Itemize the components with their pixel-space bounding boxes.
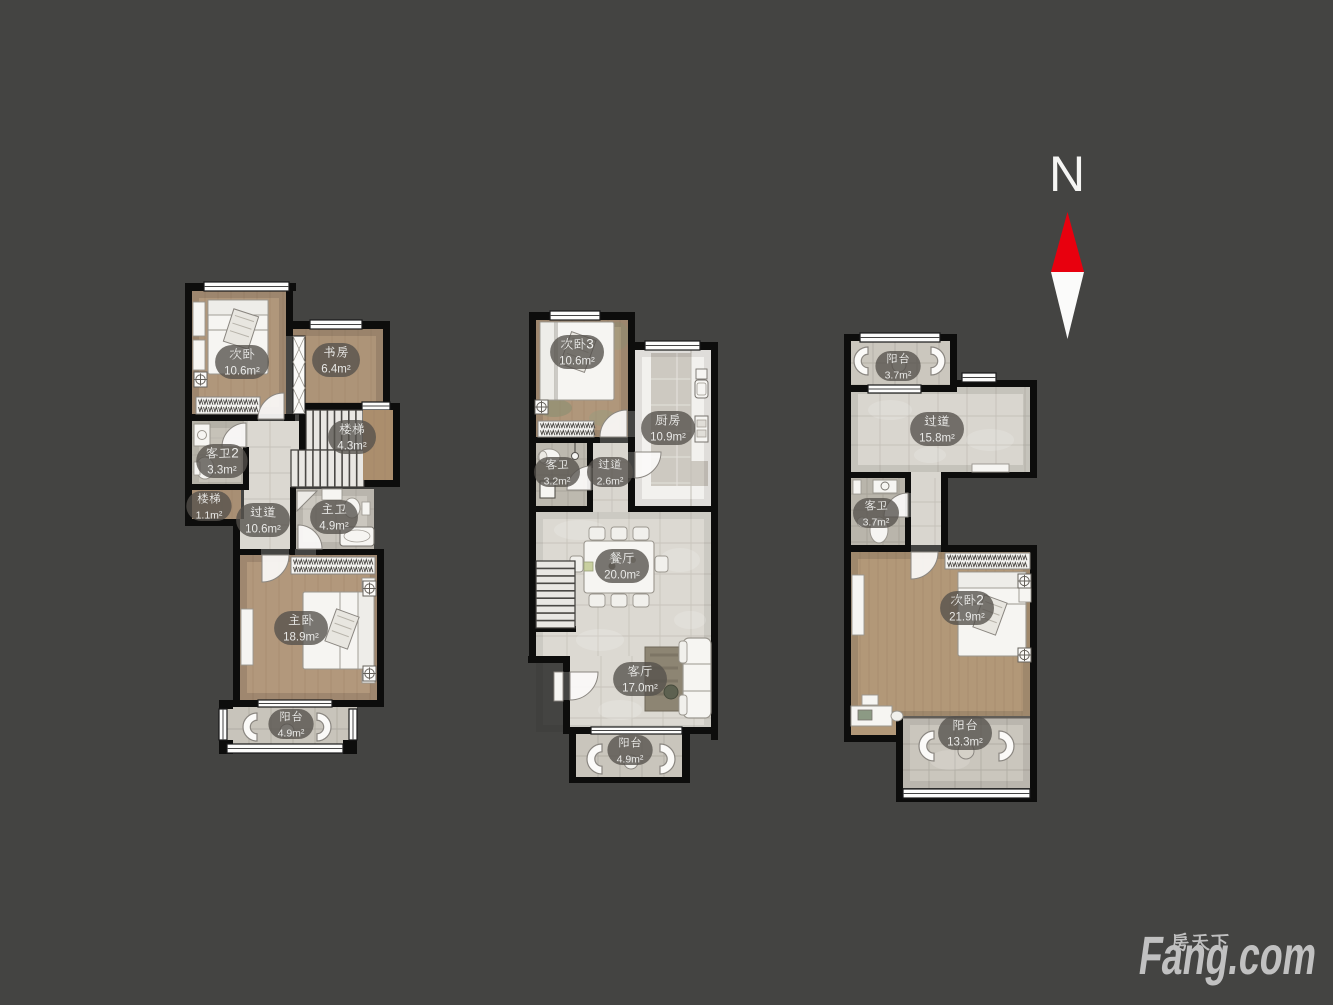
svg-text:4.3m²: 4.3m² <box>337 441 367 453</box>
svg-text:17.0m²: 17.0m² <box>622 683 658 695</box>
svg-text:10.6m²: 10.6m² <box>245 524 281 536</box>
svg-text:N: N <box>1049 146 1085 202</box>
svg-text:3.3m²: 3.3m² <box>207 465 237 477</box>
svg-text:10.9m²: 10.9m² <box>650 432 686 444</box>
svg-text:13.3m²: 13.3m² <box>947 737 983 749</box>
svg-text:10.6m²: 10.6m² <box>224 366 260 378</box>
svg-text:2: 2 <box>231 446 239 461</box>
svg-text:21.9m²: 21.9m² <box>949 612 985 624</box>
svg-text:18.9m²: 18.9m² <box>283 632 319 644</box>
svg-text:4.9m²: 4.9m² <box>278 728 305 740</box>
svg-text:3.7m²: 3.7m² <box>885 370 912 382</box>
svg-text:2: 2 <box>976 593 984 608</box>
svg-text:2.6m²: 2.6m² <box>597 476 624 488</box>
svg-text:3.7m²: 3.7m² <box>863 517 890 529</box>
svg-text:3: 3 <box>586 337 594 352</box>
svg-text:6.4m²: 6.4m² <box>321 364 351 376</box>
svg-text:15.8m²: 15.8m² <box>919 433 955 445</box>
svg-text:3.2m²: 3.2m² <box>544 476 571 488</box>
svg-text:20.0m²: 20.0m² <box>604 570 640 582</box>
svg-text:1.1m²: 1.1m² <box>196 510 223 522</box>
svg-text:4.9m²: 4.9m² <box>617 754 644 766</box>
svg-text:4.9m²: 4.9m² <box>319 521 349 533</box>
svg-text:10.6m²: 10.6m² <box>559 356 595 368</box>
